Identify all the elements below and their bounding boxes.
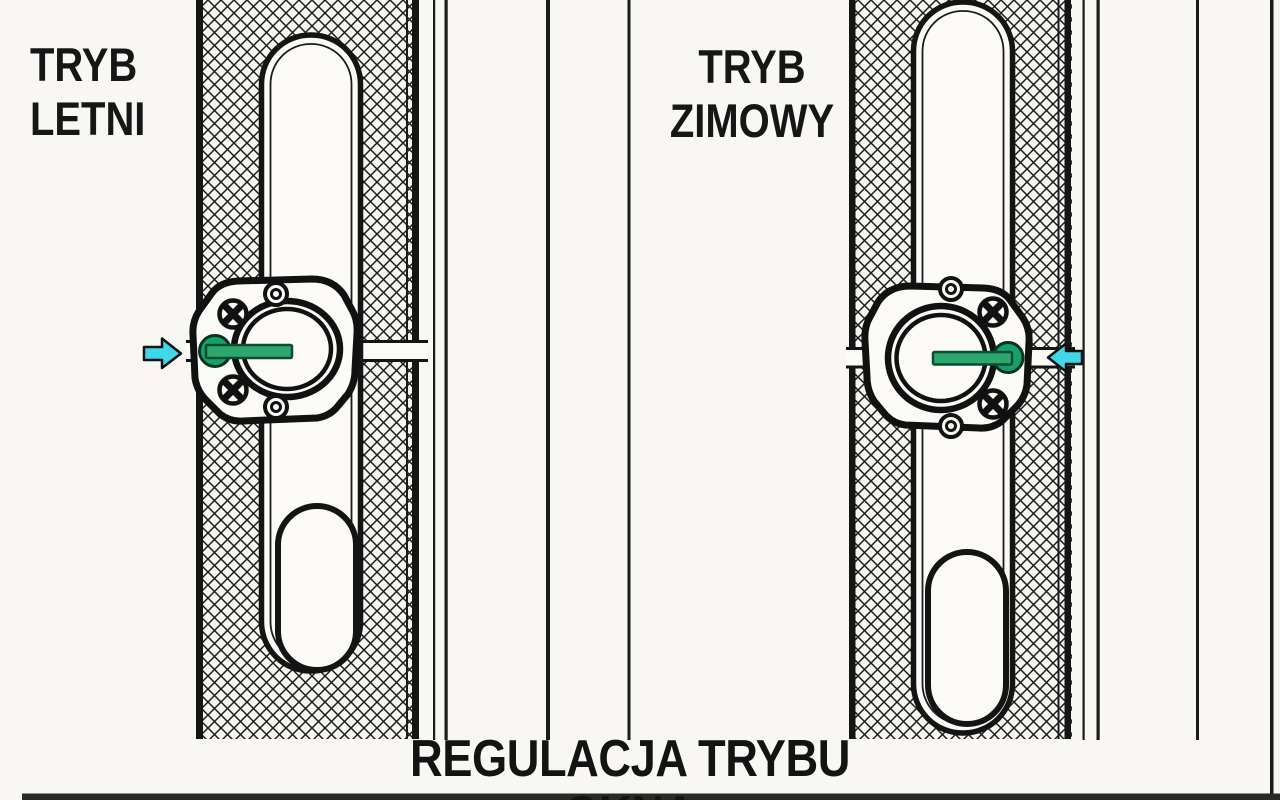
pin-bar (206, 345, 292, 358)
rivet-ring-icon (265, 396, 287, 418)
arrow-right-icon (144, 339, 181, 369)
profile-line (1270, 0, 1274, 797)
pin-bar (933, 352, 1012, 365)
window-mode-diagram: TRYB LETNI TRYB ZIMOWY REGULACJA TRYBU O… (0, 0, 1280, 800)
middle-profile-lines (433, 0, 631, 740)
right-panel-title: TRYB ZIMOWY (650, 40, 854, 148)
left-rod-slot (278, 506, 356, 670)
rivet-ring-icon (940, 278, 962, 300)
right-rod-slot (928, 552, 1006, 724)
right-cam-plate (865, 278, 1029, 437)
right-title-line1: TRYB (650, 40, 854, 94)
rivet-ring-icon (265, 283, 287, 305)
left-title-line2: LETNI (30, 92, 145, 146)
diagram-linework (0, 0, 1280, 800)
phillips-screw-icon (980, 299, 1007, 326)
phillips-screw-icon (980, 391, 1007, 418)
rivet-ring-icon (940, 415, 962, 437)
left-frame-inner-line (406, 0, 408, 739)
profile-line (628, 0, 631, 740)
right-title-line2: ZIMOWY (650, 94, 854, 148)
left-cam-plate (193, 279, 357, 421)
profile-line (546, 0, 550, 740)
phillips-screw-icon (220, 377, 247, 404)
left-panel-title: TRYB LETNI (30, 38, 145, 146)
left-title-line1: TRYB (30, 38, 145, 92)
left-frame-right-edge (412, 0, 419, 739)
right-frame-inner-line (1058, 0, 1060, 739)
profile-line (1196, 0, 1199, 740)
right-profile-lines (1083, 0, 1274, 797)
profile-line (1083, 0, 1085, 740)
profile-line (433, 0, 435, 740)
phillips-screw-icon (220, 301, 247, 328)
diagram-caption: REGULACJA TRYBU OKNA (382, 731, 878, 800)
profile-line (1097, 0, 1100, 740)
profile-line (445, 0, 448, 740)
